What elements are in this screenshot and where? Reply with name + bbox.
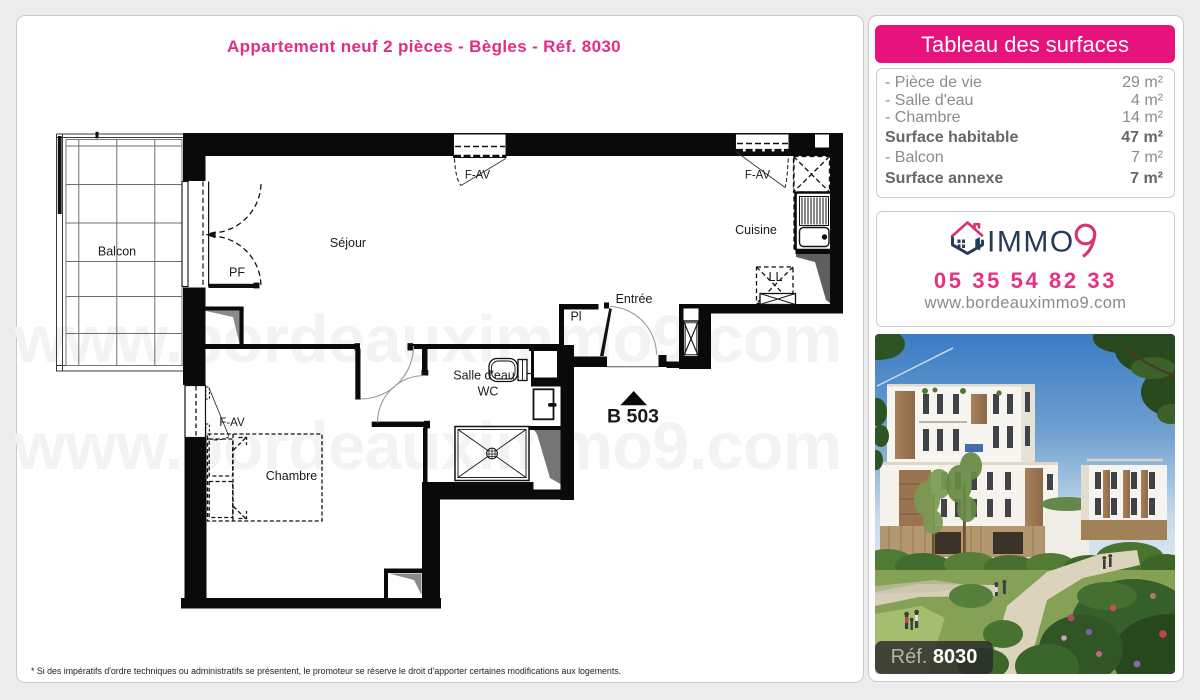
svg-text:F-AV: F-AV bbox=[465, 170, 491, 182]
svg-text:WC: WC bbox=[478, 385, 499, 399]
svg-text:Pl: Pl bbox=[570, 310, 581, 324]
svg-text:Balcon: Balcon bbox=[98, 245, 136, 259]
svg-text:B 503: B 503 bbox=[607, 406, 659, 428]
svg-text:LL: LL bbox=[769, 270, 783, 284]
svg-text:Entrée: Entrée bbox=[616, 292, 653, 306]
svg-text:Séjour: Séjour bbox=[330, 236, 366, 250]
svg-text:Chambre: Chambre bbox=[266, 469, 317, 483]
svg-text:PF: PF bbox=[229, 266, 245, 280]
svg-text:F-AV: F-AV bbox=[745, 170, 771, 182]
svg-text:Cuisine: Cuisine bbox=[735, 223, 777, 237]
svg-text:F-AV: F-AV bbox=[219, 417, 245, 429]
svg-text:Salle d'eau: Salle d'eau bbox=[453, 369, 515, 383]
